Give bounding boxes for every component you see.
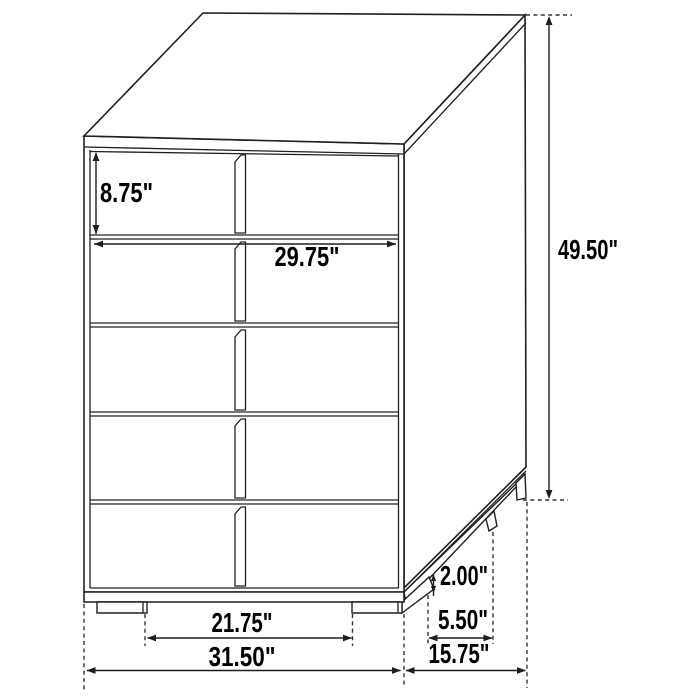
drawer-width-label: 29.75" bbox=[275, 241, 340, 272]
arrow-up-icon bbox=[546, 16, 553, 25]
arrow-down-icon bbox=[546, 490, 553, 499]
dim-leg-height: 2.00" bbox=[431, 560, 488, 596]
drawer-height-label: 8.75" bbox=[100, 177, 153, 208]
arrow-left-icon bbox=[147, 635, 156, 642]
arrow-left-icon bbox=[406, 667, 415, 674]
overall-width-label: 31.50" bbox=[209, 641, 276, 672]
arrow-right-icon bbox=[517, 667, 526, 674]
back-right-foot bbox=[516, 474, 526, 500]
arrow-right-icon bbox=[343, 635, 352, 642]
front-right-foot bbox=[352, 602, 402, 613]
overall-depth-label: 15.75" bbox=[429, 638, 490, 669]
leg-height-label: 2.00" bbox=[440, 560, 488, 591]
chest bbox=[84, 13, 526, 613]
leg-spacing-width-label: 21.75" bbox=[212, 607, 273, 638]
arrow-right-icon bbox=[392, 667, 401, 674]
drawer-center-handle bbox=[235, 155, 246, 233]
drawer-center-handle bbox=[235, 242, 246, 321]
base-plinth-front bbox=[84, 592, 404, 602]
drawer-center-handle bbox=[235, 507, 246, 586]
drawer-center-handle bbox=[235, 330, 246, 410]
arrow-left-icon bbox=[87, 667, 96, 674]
overall-height-label: 49.50" bbox=[558, 234, 618, 265]
front-left-foot bbox=[97, 602, 147, 613]
leg-spacing-depth-label: 5.50" bbox=[438, 604, 488, 635]
dim-overall-height: 49.50" bbox=[523, 15, 618, 500]
drawer-center-handle bbox=[235, 419, 246, 498]
chest-dimension-drawing: 8.75" 29.75" 49.50" 2.00" bbox=[0, 0, 700, 700]
dimension-diagram: 8.75" 29.75" 49.50" 2.00" bbox=[0, 0, 700, 700]
